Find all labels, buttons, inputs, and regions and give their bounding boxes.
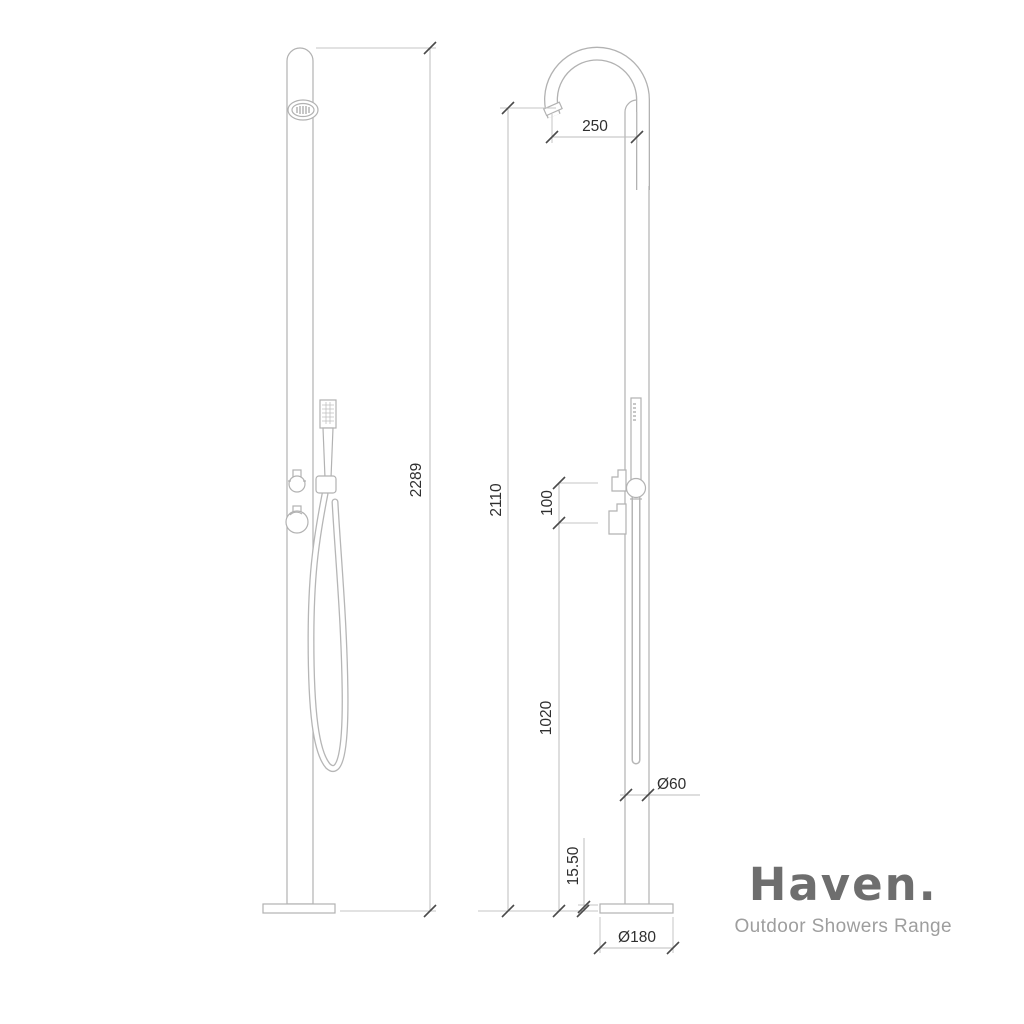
side-hose-holder	[627, 479, 646, 498]
front-hose	[311, 494, 345, 769]
brand-badge-icon	[288, 100, 318, 120]
dimension-labels: 2289 2110 100 1020 15.50 250 Ø60 Ø180	[408, 118, 687, 946]
dim-lower-section-height: 1020	[538, 700, 555, 735]
dim-front-total-height: 2289	[408, 463, 425, 497]
front-base-plate	[263, 904, 335, 913]
brand-tagline: Outdoor Showers Range	[734, 916, 952, 938]
dim-control-spacing: 100	[539, 490, 556, 516]
front-hose-holder	[316, 476, 336, 493]
side-lower-knob	[609, 504, 626, 534]
dim-base-plate-diameter: Ø180	[618, 929, 656, 946]
drawing-canvas: 2289 2110 100 1020 15.50 250 Ø60 Ø180 Ha…	[0, 0, 1024, 1024]
brand-name: Haven.	[734, 858, 952, 911]
dim-base-plate-thickness: 15.50	[565, 846, 582, 885]
dim-spout-reach: 250	[582, 118, 608, 135]
front-hand-shower	[316, 400, 336, 493]
dim-side-overall-height: 2110	[488, 483, 505, 517]
dim-column-diameter: Ø60	[657, 776, 687, 793]
front-view	[263, 48, 345, 913]
brand-lockup: Haven. Outdoor Showers Range	[734, 858, 952, 938]
side-base-plate	[600, 904, 673, 913]
side-hand-shower	[627, 398, 646, 499]
side-upper-knob	[612, 470, 626, 491]
